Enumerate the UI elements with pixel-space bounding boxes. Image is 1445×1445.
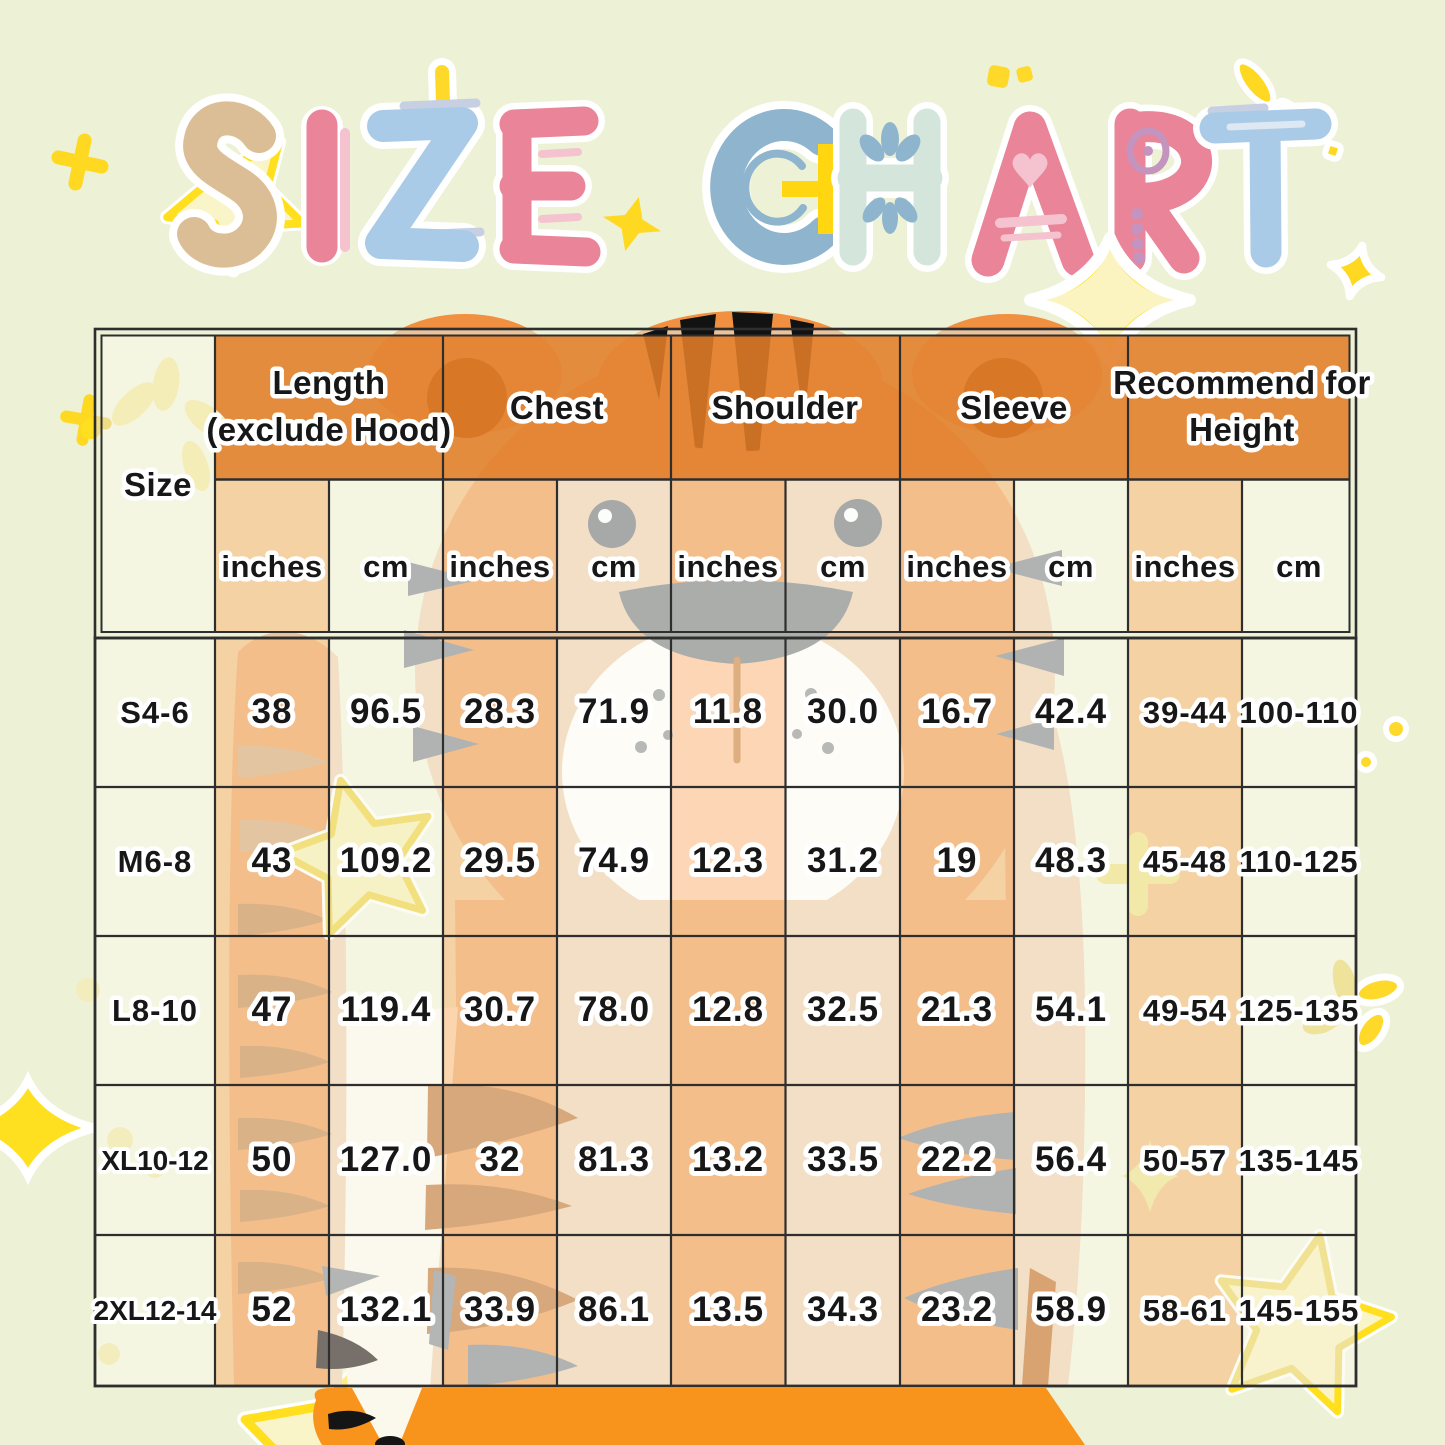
svg-text:inches: inches bbox=[449, 549, 550, 584]
svg-text:110-125: 110-125 bbox=[1239, 844, 1358, 879]
svg-text:19: 19 bbox=[937, 841, 978, 880]
svg-text:50-57: 50-57 bbox=[1143, 1143, 1227, 1178]
svg-text:81.3: 81.3 bbox=[578, 1140, 650, 1179]
svg-text:11.8: 11.8 bbox=[693, 692, 763, 731]
svg-text:58.9: 58.9 bbox=[1035, 1290, 1107, 1329]
svg-text:78.0: 78.0 bbox=[578, 990, 650, 1029]
svg-text:16.7: 16.7 bbox=[921, 692, 993, 731]
svg-text:29.5: 29.5 bbox=[464, 841, 536, 880]
svg-text:135-145: 135-145 bbox=[1239, 1143, 1360, 1178]
svg-text:50: 50 bbox=[252, 1140, 293, 1179]
svg-text:127.0: 127.0 bbox=[340, 1140, 433, 1179]
svg-text:Size: Size bbox=[124, 466, 192, 503]
svg-text:32.5: 32.5 bbox=[807, 990, 879, 1029]
svg-text:31.2: 31.2 bbox=[807, 841, 879, 880]
svg-text:47: 47 bbox=[252, 990, 293, 1029]
svg-text:(exclude Hood): (exclude Hood) bbox=[206, 411, 451, 448]
svg-text:71.9: 71.9 bbox=[578, 692, 650, 731]
svg-text:119.4: 119.4 bbox=[341, 990, 432, 1029]
svg-text:30.0: 30.0 bbox=[807, 692, 879, 731]
svg-text:inches: inches bbox=[906, 549, 1007, 584]
svg-text:Chest: Chest bbox=[510, 389, 604, 426]
svg-text:32: 32 bbox=[480, 1140, 521, 1179]
svg-text:96.5: 96.5 bbox=[350, 692, 422, 731]
svg-text:39-44: 39-44 bbox=[1143, 695, 1227, 730]
svg-text:12.8: 12.8 bbox=[692, 990, 764, 1029]
svg-text:28.3: 28.3 bbox=[464, 692, 536, 731]
svg-text:Height: Height bbox=[1189, 411, 1295, 448]
svg-text:cm: cm bbox=[820, 549, 866, 584]
svg-text:12.3: 12.3 bbox=[692, 841, 764, 880]
svg-text:13.5: 13.5 bbox=[692, 1290, 764, 1329]
svg-text:38: 38 bbox=[252, 692, 293, 731]
svg-text:33.5: 33.5 bbox=[807, 1140, 879, 1179]
svg-text:21.3: 21.3 bbox=[921, 990, 993, 1029]
svg-text:30.7: 30.7 bbox=[464, 990, 536, 1029]
svg-text:inches: inches bbox=[677, 549, 778, 584]
svg-text:34.3: 34.3 bbox=[807, 1290, 879, 1329]
svg-text:cm: cm bbox=[591, 549, 637, 584]
svg-text:S4-6: S4-6 bbox=[120, 695, 189, 730]
svg-text:Sleeve: Sleeve bbox=[960, 389, 1068, 426]
svg-text:49-54: 49-54 bbox=[1143, 993, 1227, 1028]
svg-text:2XL12-14: 2XL12-14 bbox=[94, 1295, 217, 1326]
svg-text:inches: inches bbox=[221, 549, 322, 584]
svg-text:54.1: 54.1 bbox=[1035, 990, 1107, 1029]
svg-text:13.2: 13.2 bbox=[692, 1140, 764, 1179]
svg-text:Length: Length bbox=[273, 364, 386, 401]
svg-text:109.2: 109.2 bbox=[340, 841, 433, 880]
svg-text:45-48: 45-48 bbox=[1143, 844, 1227, 879]
svg-text:132.1: 132.1 bbox=[340, 1290, 433, 1329]
svg-text:cm: cm bbox=[363, 549, 409, 584]
svg-text:22.2: 22.2 bbox=[921, 1140, 993, 1179]
svg-text:33.9: 33.9 bbox=[464, 1290, 536, 1329]
svg-text:125-135: 125-135 bbox=[1239, 993, 1360, 1028]
svg-text:56.4: 56.4 bbox=[1035, 1140, 1107, 1179]
svg-text:XL10-12: XL10-12 bbox=[101, 1145, 208, 1176]
svg-text:43: 43 bbox=[252, 841, 293, 880]
svg-text:cm: cm bbox=[1048, 549, 1094, 584]
svg-text:52: 52 bbox=[252, 1290, 293, 1329]
svg-text:L8-10: L8-10 bbox=[112, 993, 198, 1028]
svg-text:145-155: 145-155 bbox=[1239, 1293, 1360, 1328]
svg-text:48.3: 48.3 bbox=[1035, 841, 1107, 880]
svg-text:Shoulder: Shoulder bbox=[711, 389, 858, 426]
svg-text:100-110: 100-110 bbox=[1239, 695, 1358, 730]
svg-text:M6-8: M6-8 bbox=[118, 844, 193, 879]
svg-text:42.4: 42.4 bbox=[1035, 692, 1107, 731]
svg-text:cm: cm bbox=[1276, 549, 1322, 584]
svg-text:Recommend for: Recommend for bbox=[1113, 364, 1371, 401]
svg-text:inches: inches bbox=[1134, 549, 1235, 584]
svg-text:58-61: 58-61 bbox=[1143, 1293, 1227, 1328]
svg-text:23.2: 23.2 bbox=[921, 1290, 993, 1329]
svg-text:74.9: 74.9 bbox=[578, 841, 650, 880]
svg-text:86.1: 86.1 bbox=[578, 1290, 650, 1329]
